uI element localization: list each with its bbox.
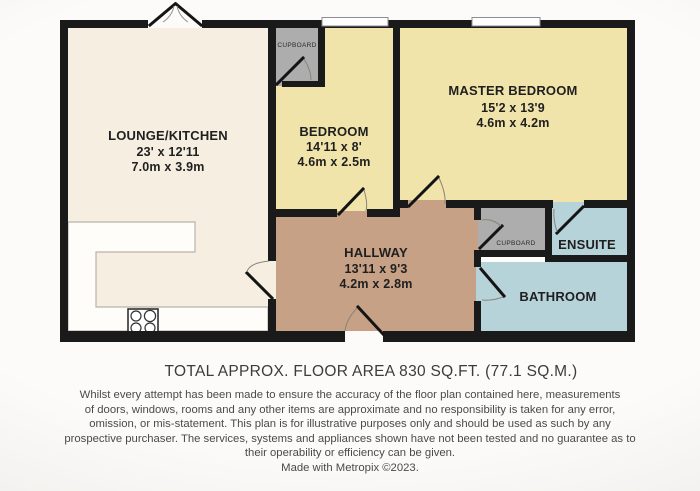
wall-bottom-right <box>383 331 635 342</box>
wall-left <box>60 20 68 342</box>
wall-cupboard-ensuite-divider <box>545 206 552 257</box>
wall-lounge-divider-lower <box>268 299 276 335</box>
room-dim-imperial: 13'11 x 9'3 <box>344 262 407 276</box>
floorplan: LOUNGE/KITCHEN 23' x 12'11 7.0m x 3.9m B… <box>0 0 700 360</box>
wall-cupboard-top-bottom <box>282 81 325 87</box>
room-label: MASTER BEDROOM <box>448 83 577 98</box>
wall-master-bottom-a <box>393 200 408 208</box>
room-cupboard-right <box>478 208 545 254</box>
label-cupboard-top: CUPBOARD <box>277 42 316 49</box>
label-bedroom: BEDROOM 14'11 x 8' 4.6m x 2.5m <box>297 124 370 169</box>
disclaimer-line: their operability or efficiency can be g… <box>0 446 700 461</box>
wall-cupboard-right-bottom <box>474 250 552 257</box>
made-with-credit: Made with Metropix ©2023. <box>0 461 700 476</box>
label-bathroom: BATHROOM <box>519 289 596 304</box>
room-dim-imperial: 15'2 x 13'9 <box>481 101 545 115</box>
wall-bathroom-left-upper <box>474 255 481 267</box>
disclaimer-line: Whilst every attempt has been made to en… <box>0 388 700 403</box>
label-hallway: HALLWAY 13'11 x 9'3 4.2m x 2.8m <box>339 245 412 291</box>
label-ensuite: ENSUITE <box>558 237 616 252</box>
wall-right <box>627 20 635 342</box>
label-cupboard-right: CUPBOARD <box>496 240 535 247</box>
room-dim-metric: 4.6m x 4.2m <box>476 116 549 130</box>
wall-top-right <box>202 20 635 28</box>
disclaimer-line: of doors, windows, rooms and any other i… <box>0 403 700 418</box>
room-label: LOUNGE/KITCHEN <box>108 128 228 143</box>
room-dim-metric: 4.2m x 2.8m <box>339 277 412 291</box>
wall-bottom-left <box>60 331 345 342</box>
wall-top-left <box>60 20 148 28</box>
disclaimer-line: omission, or mis-statement. This plan is… <box>0 417 700 432</box>
window-master-bedroom <box>472 18 540 27</box>
room-dim-metric: 7.0m x 3.9m <box>131 160 204 174</box>
wall-cupboard-right-stub <box>474 206 481 220</box>
door-leaf <box>176 4 201 25</box>
wall-bedroom-bottom-left <box>268 209 337 217</box>
room-label: HALLWAY <box>344 245 408 260</box>
room-label: BEDROOM <box>299 124 368 139</box>
wall-lounge-divider-upper <box>268 20 276 261</box>
room-lounge-kitchen <box>68 28 276 331</box>
disclaimer: Whilst every attempt has been made to en… <box>0 388 700 475</box>
french-doors <box>150 4 201 25</box>
footer: TOTAL APPROX. FLOOR AREA 830 SQ.FT. (77.… <box>0 363 700 475</box>
floorplan-canvas: LOUNGE/KITCHEN 23' x 12'11 7.0m x 3.9m B… <box>0 0 700 491</box>
disclaimer-line: prospective purchaser. The services, sys… <box>0 432 700 447</box>
wall-cupboard-top-right <box>318 20 325 86</box>
total-area-title: TOTAL APPROX. FLOOR AREA 830 SQ.FT. (77.… <box>0 363 700 381</box>
wall-ensuite-bottom <box>545 255 635 262</box>
door-leaf <box>150 4 175 25</box>
wall-bedroom-bottom-right <box>367 209 400 217</box>
room-dim-imperial: 23' x 12'11 <box>136 145 199 159</box>
window-bedroom <box>322 18 388 27</box>
wall-bedroom-divider <box>393 20 400 217</box>
wall-master-bottom-c <box>584 200 635 208</box>
wall-bathroom-left-lower <box>474 301 481 333</box>
room-dim-imperial: 14'11 x 8' <box>306 140 362 154</box>
wall-master-bottom-b <box>446 200 553 208</box>
room-dim-metric: 4.6m x 2.5m <box>297 155 370 169</box>
